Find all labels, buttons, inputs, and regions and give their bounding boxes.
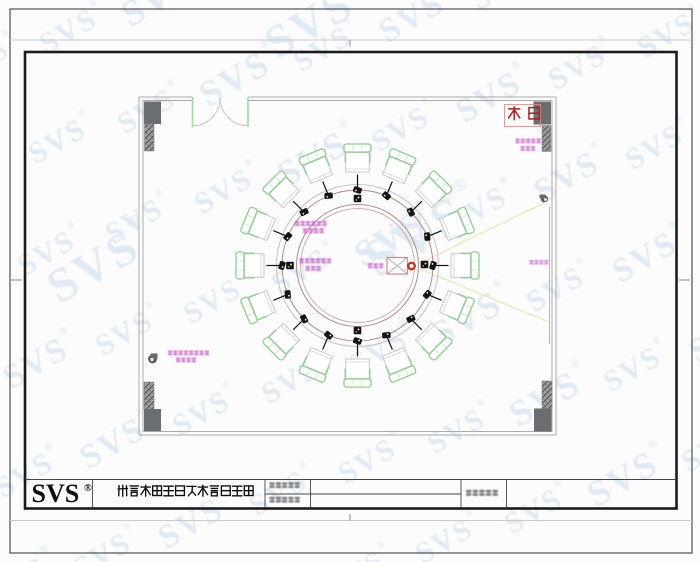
svg-text:®: ® (84, 483, 92, 494)
svg-text:SVS: SVS (74, 410, 152, 477)
svg-text:SVS: SVS (23, 112, 92, 171)
svg-text:SVS: SVS (244, 464, 313, 523)
svg-text:SVS: SVS (466, 0, 535, 17)
svg-text:SVS: SVS (632, 6, 700, 65)
svg-text:SVS: SVS (620, 118, 689, 177)
svg-text:SVS: SVS (606, 224, 684, 291)
svg-text:SVS: SVS (333, 432, 402, 491)
svg-text:SVS: SVS (598, 340, 667, 399)
svg-text:SVS: SVS (373, 0, 451, 51)
svg-text:SVS: SVS (0, 330, 75, 397)
svg-text:SVS: SVS (32, 479, 80, 508)
svg-text:SVS: SVS (528, 144, 606, 211)
svg-text:SVS: SVS (499, 482, 568, 541)
svg-text:SVS: SVS (366, 100, 435, 159)
svg-text:SVS: SVS (90, 304, 159, 363)
svg-text:SVS: SVS (683, 304, 700, 371)
svg-text:SVS: SVS (167, 384, 236, 443)
svg-text:SVS: SVS (521, 260, 590, 319)
svg-text:SVS: SVS (0, 144, 3, 203)
svg-text:SVS: SVS (178, 272, 247, 331)
svg-text:SVS: SVS (543, 38, 612, 97)
svg-text:SVS: SVS (114, 0, 200, 35)
svg-text:SVS: SVS (580, 442, 666, 515)
svg-text:SVS: SVS (676, 420, 700, 479)
svg-text:SVS: SVS (152, 490, 230, 557)
